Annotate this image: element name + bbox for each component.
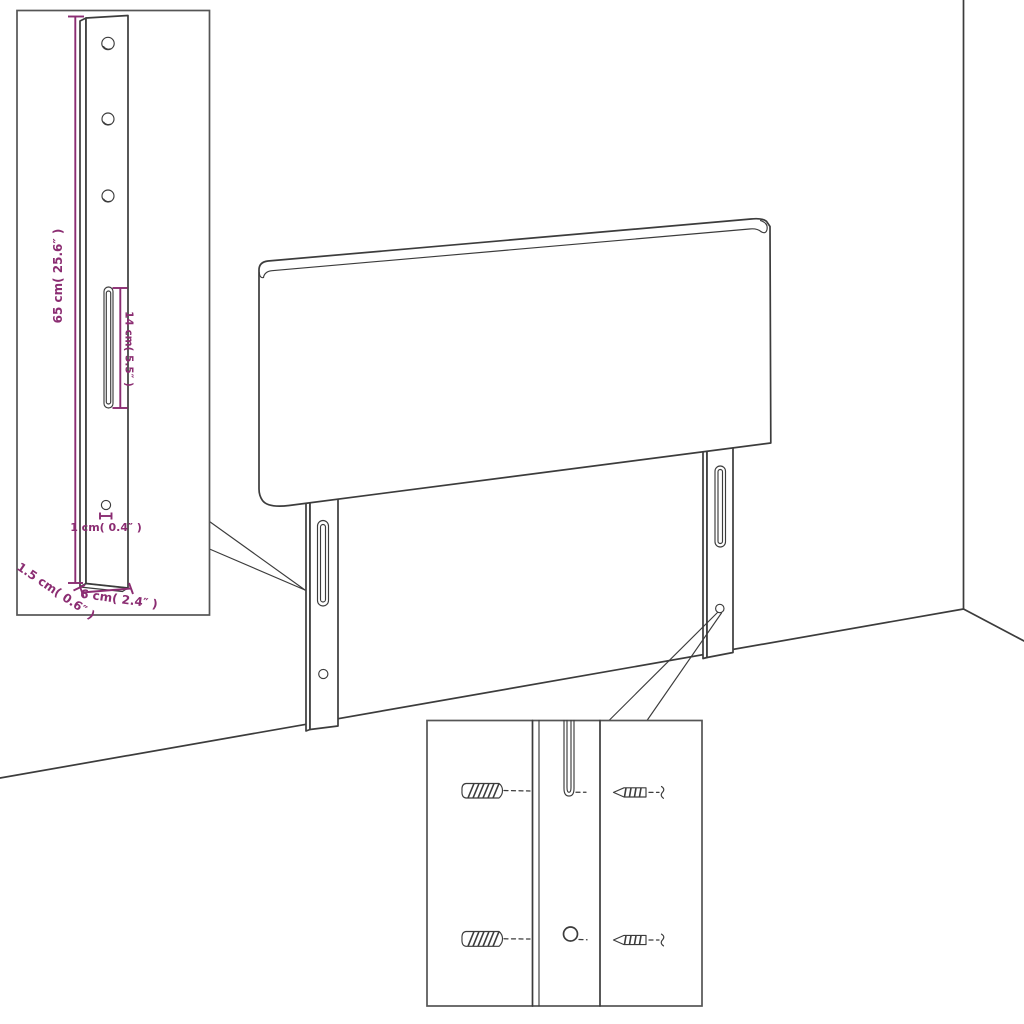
callout-line-hole-to-inset-2: [647, 613, 722, 721]
callout-lines: [210, 522, 722, 721]
bracket-front-face: [86, 16, 128, 589]
leg-detail-inset: 65 cm( 25.6″ ) 14 cm( 5.5″ ) 1 cm( 0.4″ …: [14, 11, 209, 623]
panel-outline: [259, 219, 771, 506]
left-leg: [306, 490, 338, 731]
dim-hole-label: 1 cm( 0.4″ ): [70, 521, 142, 534]
mounting-detail-inset: [427, 721, 702, 1007]
headboard-panel: [259, 219, 771, 506]
dim-slot-label: 14 cm( 5.5″ ): [123, 311, 135, 387]
right-leg: [703, 440, 733, 659]
diagram-svg: 65 cm( 25.6″ ) 14 cm( 5.5″ ) 1 cm( 0.4″ …: [0, 0, 1024, 1024]
right-leg-front-face: [707, 440, 733, 658]
callout-line-hole-to-inset-1: [609, 613, 718, 721]
headboard-dimension-diagram: 65 cm( 25.6″ ) 14 cm( 5.5″ ) 1 cm( 0.4″ …: [0, 0, 1024, 1024]
dim-height-label: 65 cm( 25.6″ ): [51, 229, 65, 324]
floor-line-right: [964, 609, 1024, 641]
bracket-side-face: [80, 18, 86, 587]
left-leg-front-face: [310, 490, 338, 730]
